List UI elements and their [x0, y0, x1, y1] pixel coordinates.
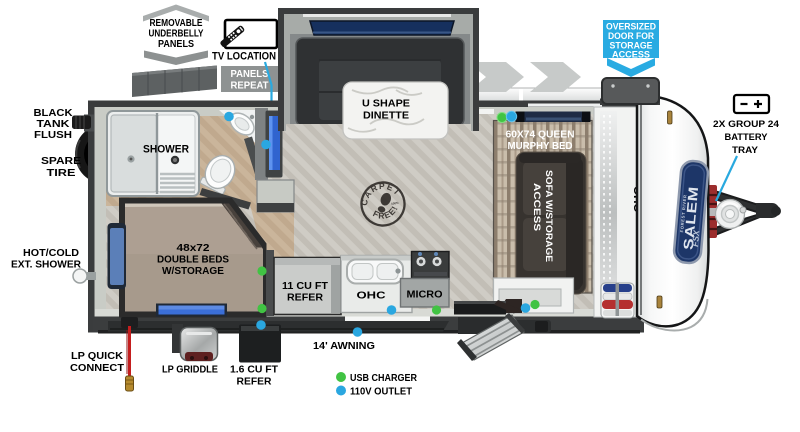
svg-text:REFER: REFER: [287, 292, 323, 304]
svg-text:ACCESS: ACCESS: [612, 50, 650, 61]
svg-text:MICRO: MICRO: [407, 289, 443, 301]
svg-text:CONNECT: CONNECT: [70, 362, 125, 374]
svg-text:SOFA W/STORAGE: SOFA W/STORAGE: [543, 170, 554, 262]
svg-text:11 CU FT: 11 CU FT: [282, 280, 329, 292]
svg-text:TRAY: TRAY: [732, 145, 759, 156]
svg-text:ACCESS: ACCESS: [531, 183, 542, 231]
svg-text:TIRE: TIRE: [47, 167, 76, 179]
svg-text:LP QUICK: LP QUICK: [71, 350, 123, 362]
svg-text:1.6 CU FT: 1.6 CU FT: [230, 364, 279, 376]
svg-text:EXT. SHOWER: EXT. SHOWER: [11, 259, 81, 271]
svg-text:PANELS: PANELS: [231, 69, 269, 80]
svg-text:W/STORAGE: W/STORAGE: [162, 265, 224, 277]
svg-text:HOT/COLD: HOT/COLD: [23, 247, 79, 259]
svg-text:OHC: OHC: [357, 290, 387, 302]
svg-text:FSX: FSX: [690, 229, 702, 248]
svg-text:110V OUTLET: 110V OUTLET: [350, 386, 413, 398]
svg-text:UNDERBELLY: UNDERBELLY: [149, 29, 204, 40]
svg-text:TV LOCATION: TV LOCATION: [212, 51, 276, 63]
svg-text:MURPHY BED: MURPHY BED: [508, 140, 573, 152]
svg-text:DOUBLE BEDS: DOUBLE BEDS: [157, 254, 229, 266]
svg-text:BATTERY: BATTERY: [725, 132, 769, 143]
svg-text:60X74 QUEEN: 60X74 QUEEN: [506, 129, 575, 141]
svg-text:REPEAT: REPEAT: [231, 81, 269, 92]
svg-text:USB CHARGER: USB CHARGER: [350, 372, 417, 384]
svg-text:PANELS: PANELS: [158, 39, 194, 50]
svg-text:2X GROUP 24: 2X GROUP 24: [713, 119, 780, 130]
svg-text:REFER: REFER: [237, 376, 272, 388]
svg-text:48x72: 48x72: [177, 242, 210, 254]
svg-text:DINETTE: DINETTE: [363, 110, 409, 122]
svg-text:LP GRIDDLE: LP GRIDDLE: [162, 364, 218, 376]
svg-text:SHOWER: SHOWER: [143, 144, 189, 156]
svg-text:FLUSH: FLUSH: [34, 129, 72, 141]
svg-text:SPARE: SPARE: [41, 155, 81, 167]
svg-text:U SHAPE: U SHAPE: [362, 98, 410, 110]
svg-text:REMOVABLE: REMOVABLE: [150, 18, 203, 29]
svg-text:14' AWNING: 14' AWNING: [313, 340, 375, 352]
